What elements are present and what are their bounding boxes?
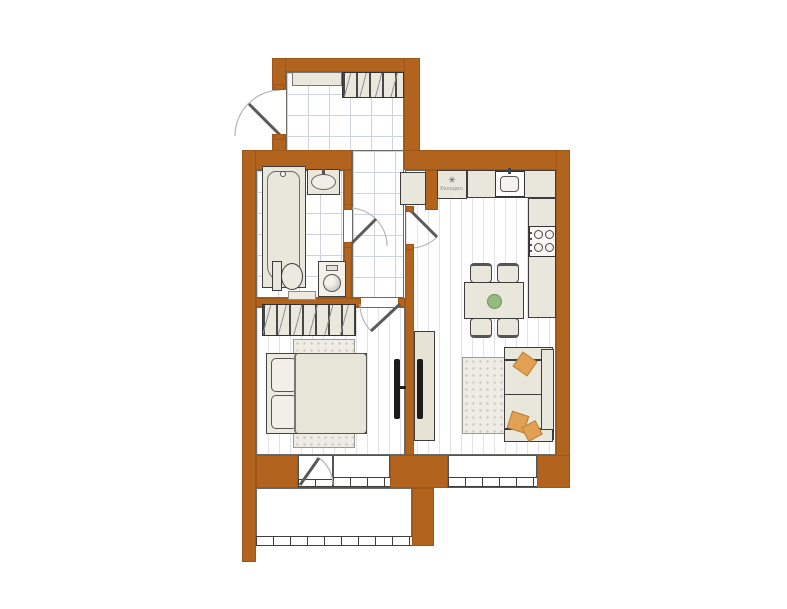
sofa-backrest[interactable]: [541, 349, 554, 440]
kitchen-door-jamb: [406, 244, 414, 250]
washer-drum: [323, 274, 341, 292]
stove[interactable]: [529, 226, 556, 257]
kitchen-counter-right[interactable]: [528, 198, 556, 318]
wall-bottom-middle-pier: [390, 455, 448, 488]
toilet-bowl[interactable]: [281, 263, 303, 290]
balcony-door-threshold: [298, 479, 333, 487]
kitchen-sink[interactable]: [495, 171, 525, 197]
stove-knobs: [530, 232, 532, 252]
wall-bedroom-door-jamb: [398, 298, 405, 307]
wall-right-exterior: [556, 150, 570, 488]
refrigerator[interactable]: ✳ Холодил.: [437, 170, 467, 199]
washer-panel: [326, 265, 338, 271]
bathroom-sink[interactable]: [307, 169, 340, 195]
bathtub-faucet: [280, 171, 286, 177]
kitchen-sink-basin: [500, 176, 519, 192]
corridor-floor: [352, 150, 404, 298]
sink-basin: [311, 174, 336, 190]
dining-chair[interactable]: [470, 263, 492, 283]
stove-burner: [545, 243, 554, 252]
wall-bottom-left-pier: [256, 455, 298, 488]
wall-kitchen-top: [404, 150, 570, 170]
stove-burner: [545, 230, 554, 239]
apartment-floor-plan: ✳ Холодил.: [0, 0, 787, 609]
wall-left-exterior: [242, 150, 256, 562]
living-rug: [462, 357, 508, 434]
dining-chair[interactable]: [497, 318, 519, 338]
stove-burner: [534, 243, 543, 252]
kitchen-sink-faucet: [508, 168, 511, 174]
sink-faucet: [322, 169, 325, 175]
bedroom-rug-top: [293, 339, 355, 354]
entrance-jamb: [274, 134, 284, 140]
wall-bottom-right-pier: [537, 455, 570, 488]
living-tv[interactable]: [417, 359, 423, 419]
bedroom-tv[interactable]: [394, 359, 400, 419]
stove-burner: [534, 230, 543, 239]
wall-bedroom-living-partition: [405, 248, 414, 455]
wall-balcony-right: [412, 488, 434, 546]
bedroom-wardrobe[interactable]: [262, 304, 356, 336]
bathroom-door-jamb: [344, 204, 352, 210]
bath-mat: [288, 291, 316, 300]
bedroom-window-sill: [333, 477, 390, 487]
bedroom-tv-mount: [399, 386, 406, 389]
washing-machine[interactable]: [318, 261, 346, 297]
balcony-glazing: [256, 536, 412, 546]
bed[interactable]: [266, 353, 367, 434]
table-plant: [487, 294, 502, 309]
refrigerator-label: Холодил.: [440, 187, 464, 193]
kitchen-entry-cabinet[interactable]: [400, 172, 426, 205]
balcony-floor: [256, 488, 412, 538]
entrance-door-leaf: [249, 104, 281, 136]
hall-shelf[interactable]: [292, 72, 342, 86]
entrance-jamb: [274, 84, 284, 90]
dining-chair[interactable]: [470, 318, 492, 338]
bed-duvet: [294, 353, 367, 434]
hall-wardrobe[interactable]: [342, 72, 404, 98]
bathroom-door-jamb: [344, 242, 352, 248]
entrance-door-arc: [235, 90, 281, 136]
dining-chair[interactable]: [497, 263, 519, 283]
living-window-sill: [448, 477, 537, 487]
kitchen-door-jamb: [406, 206, 414, 212]
bedroom-rug-bottom: [293, 433, 355, 448]
wall-hall-top: [272, 58, 420, 72]
